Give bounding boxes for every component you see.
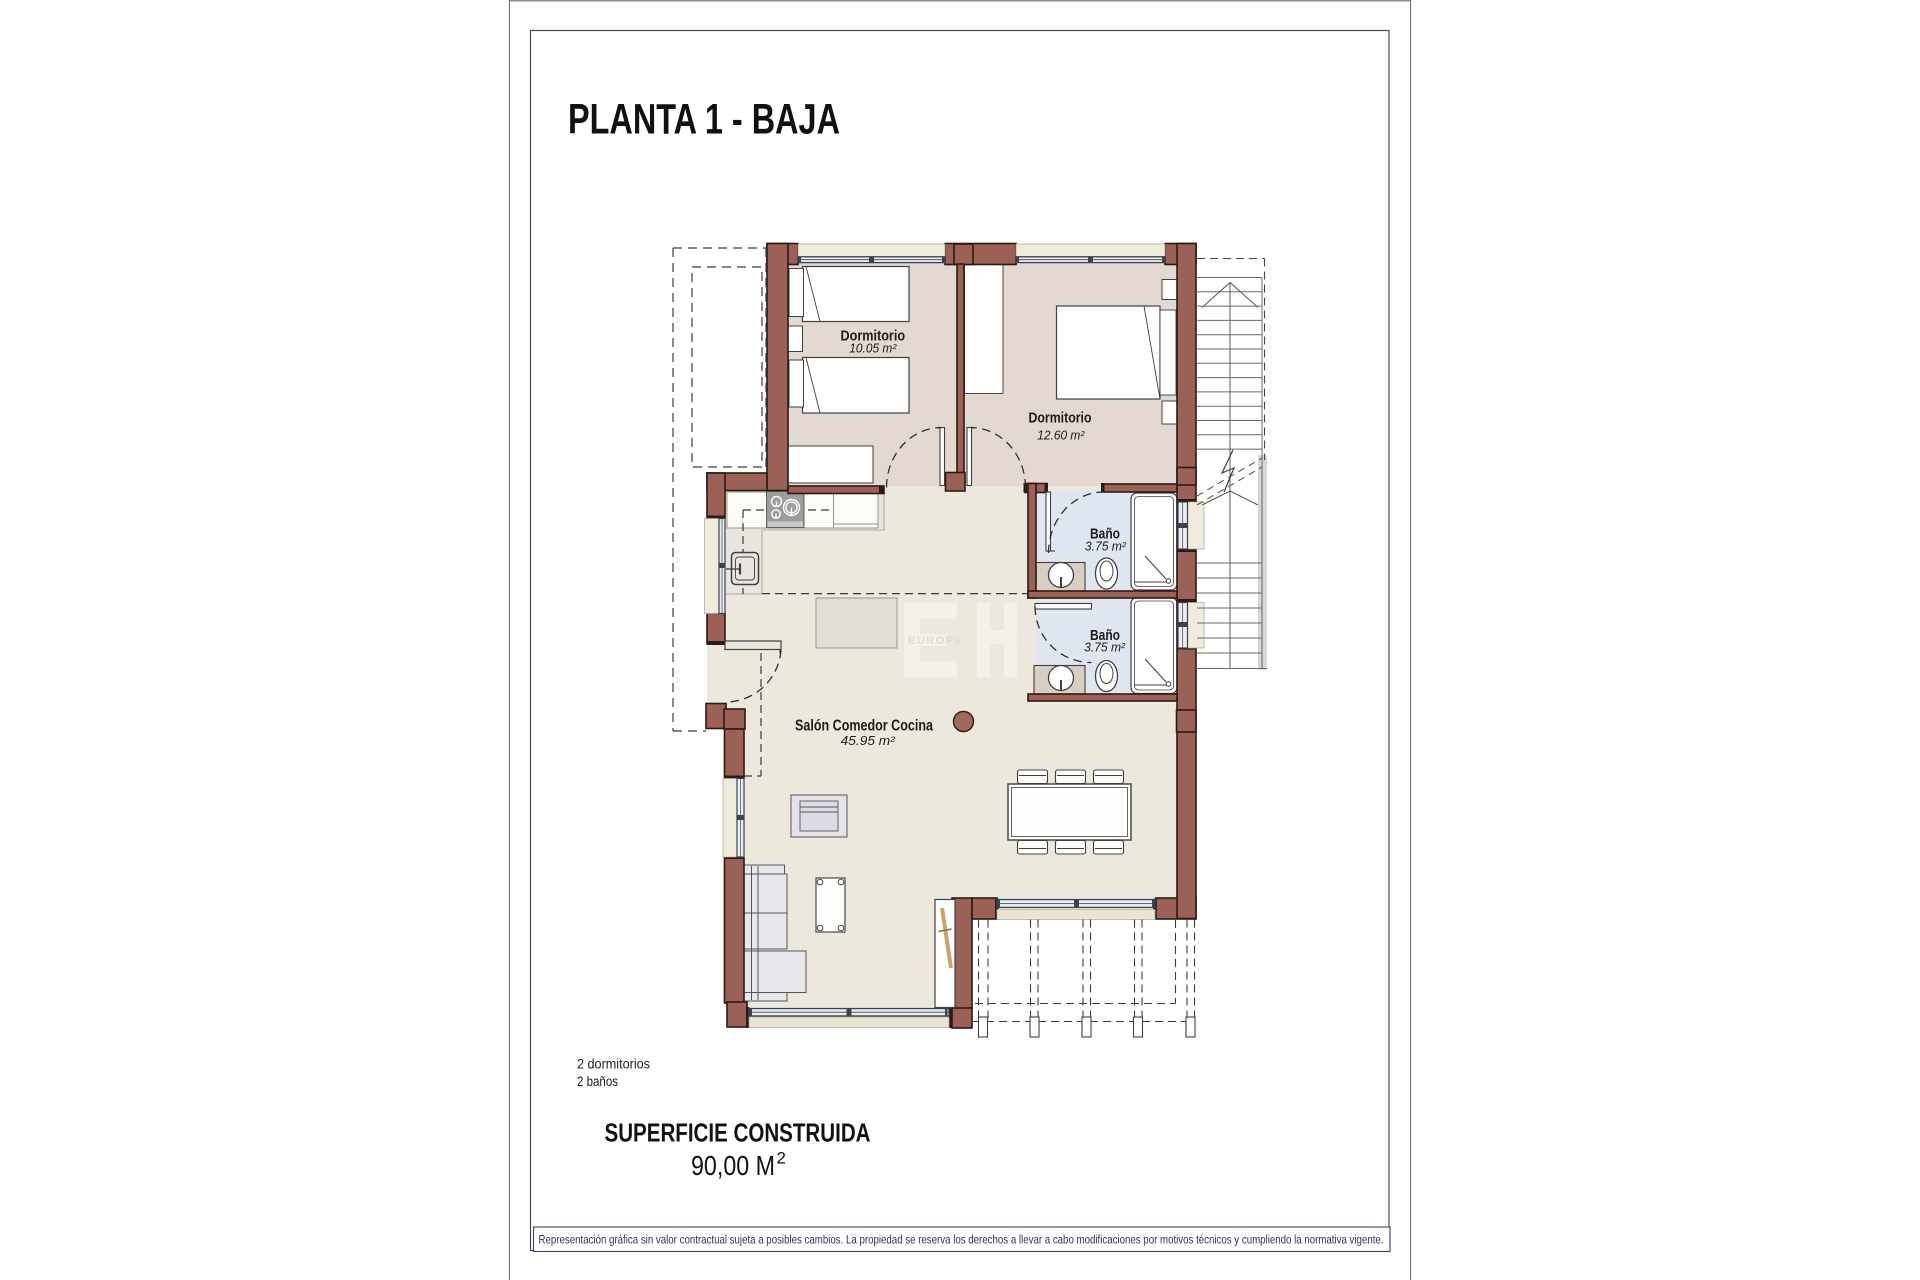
svg-text:PLANTA 1 - BAJA: PLANTA 1 - BAJA [568,97,840,144]
svg-text:2 dormitorios: 2 dormitorios [577,1057,650,1072]
svg-text:Representación gráfica sin val: Representación gráfica sin valor contrac… [539,1233,1384,1247]
svg-text:45.95 m²: 45.95 m² [841,733,896,748]
svg-text:90,00 M: 90,00 M [691,1150,775,1181]
svg-text:homes: homes [980,635,1023,647]
svg-text:Dormitorio: Dormitorio [1029,410,1092,427]
svg-text:2: 2 [777,1149,786,1168]
svg-text:SUPERFICIE CONSTRUIDA: SUPERFICIE CONSTRUIDA [605,1118,871,1148]
svg-text:Salón Comedor Cocina: Salón Comedor Cocina [795,718,933,735]
svg-text:2 baños: 2 baños [577,1074,618,1089]
svg-text:3.75 m²: 3.75 m² [1085,539,1127,554]
svg-text:EUROPE: EUROPE [908,635,963,647]
svg-text:12.60 m²: 12.60 m² [1037,428,1085,443]
svg-text:10.05 m²: 10.05 m² [849,341,897,356]
svg-text:3.75 m²: 3.75 m² [1084,640,1126,655]
